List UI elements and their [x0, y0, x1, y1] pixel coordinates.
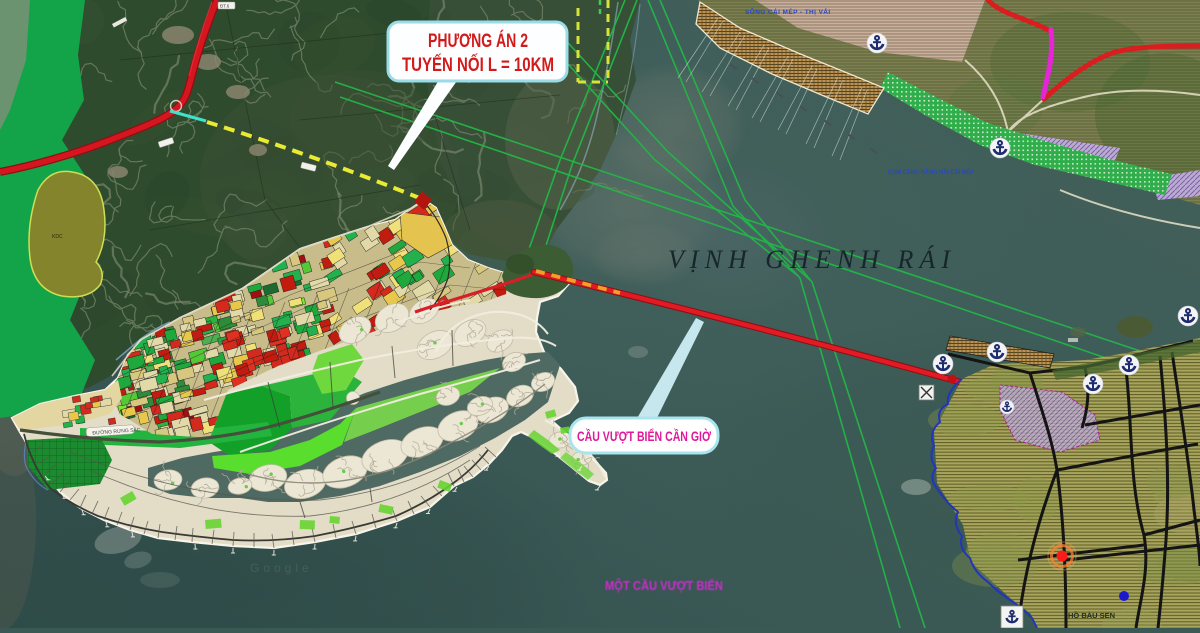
- svg-text:HỒ BÀU SEN: HỒ BÀU SEN: [1068, 610, 1115, 620]
- svg-text:CẦU VƯỢT BIỂN CẦN GIỜ: CẦU VƯỢT BIỂN CẦN GIỜ: [577, 429, 711, 444]
- svg-text:PHƯƠNG ÁN 2: PHƯƠNG ÁN 2: [428, 30, 528, 52]
- svg-text:Google: Google: [250, 561, 313, 575]
- svg-text:TUYẾN NỐI L = 10KM: TUYẾN NỐI L = 10KM: [402, 54, 554, 76]
- svg-text:MỘT CẦU VƯỢT BIỂN: MỘT CẦU VƯỢT BIỂN: [605, 578, 723, 593]
- svg-text:KDC: KDC: [52, 234, 63, 240]
- svg-text:CỤM CẢNG HÀNG HẢI CÁI MÉP: CỤM CẢNG HÀNG HẢI CÁI MÉP: [888, 167, 975, 176]
- svg-text:SÔNG CÁI MÉP - THỊ VẢI: SÔNG CÁI MÉP - THỊ VẢI: [745, 7, 831, 16]
- svg-text:ĐT.6: ĐT.6: [220, 4, 230, 9]
